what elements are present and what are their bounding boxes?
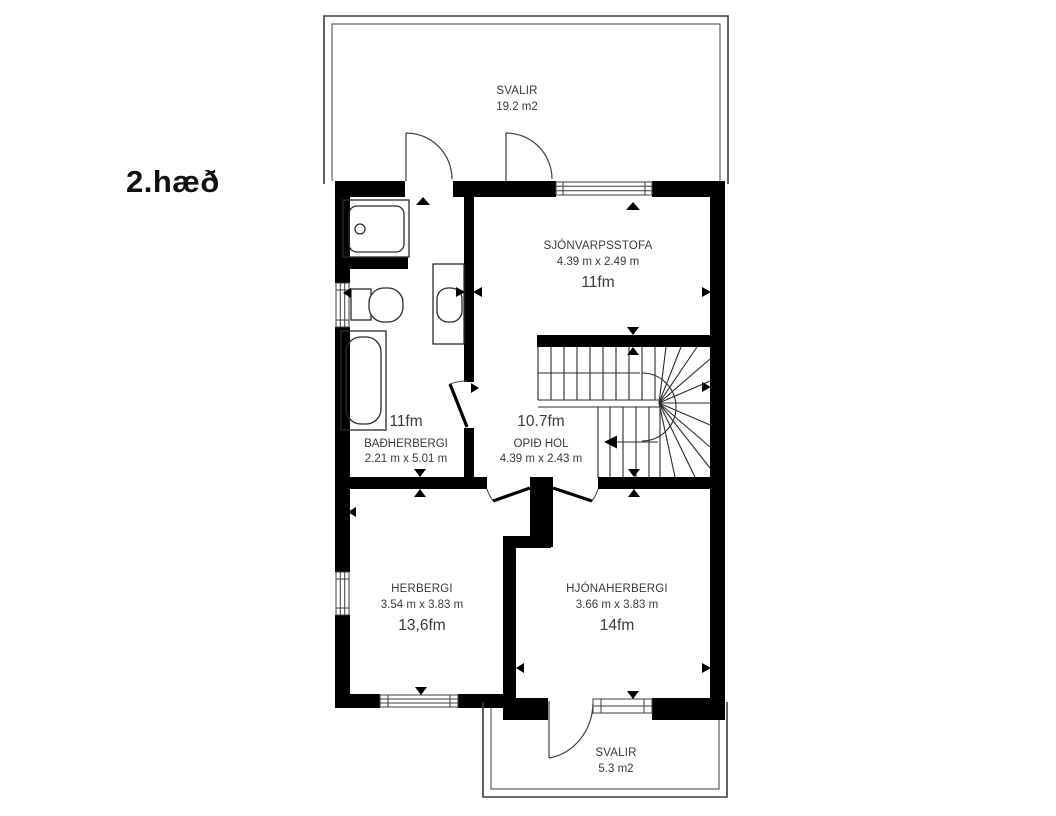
room-area: 11fm — [543, 274, 652, 293]
room-name: HJÓNAHERBERGI — [566, 583, 668, 597]
room-label-svalir-top: SVALIR 19.2 m2 — [496, 85, 538, 115]
door-swing — [553, 488, 598, 501]
room-name: SVALIR — [496, 85, 538, 99]
room-area: 11fm — [364, 413, 448, 432]
window-symbol — [336, 283, 349, 327]
shower-symbol — [343, 200, 409, 257]
room-name: HERBERGI — [381, 583, 463, 597]
room-label-hjonaherbergi: HJÓNAHERBERGI 3.66 m x 3.83 m 14fm — [566, 583, 668, 635]
room-area: 5.3 m2 — [595, 763, 636, 777]
room-label-sjonvarpsstofa: SJÓNVARPSSTOFA 4.39 m x 2.49 m 11fm — [543, 240, 652, 292]
room-label-svalir-bottom: SVALIR 5.3 m2 — [595, 747, 636, 777]
room-area: 19.2 m2 — [496, 101, 538, 115]
door-swing — [487, 488, 530, 501]
window-symbol — [556, 182, 652, 195]
room-label-herbergi: HERBERGI 3.54 m x 3.83 m 13,6fm — [381, 583, 463, 635]
window-symbol — [380, 695, 458, 707]
room-area: 14fm — [566, 617, 668, 636]
room-area: 10.7fm — [500, 413, 582, 432]
floor-plan-2nd-floor: 2.hæð — [0, 0, 1056, 816]
room-name: SJÓNVARPSSTOFA — [543, 240, 652, 254]
window-symbol — [336, 572, 349, 615]
room-dims: 3.66 m x 3.83 m — [566, 599, 668, 613]
room-label-badherbergi: 11fm BAÐHERBERGI 2.21 m x 5.01 m — [364, 413, 448, 467]
room-dims: 2.21 m x 5.01 m — [364, 453, 448, 467]
door-swing — [406, 133, 552, 181]
room-name: BAÐHERBERGI — [364, 438, 448, 452]
sink-symbol — [433, 264, 464, 344]
room-label-opid-hol: 10.7fm OPIÐ HOL 4.39 m x 2.43 m — [500, 413, 582, 467]
room-dims: 4.39 m x 2.49 m — [543, 256, 652, 270]
room-dims: 3.54 m x 3.83 m — [381, 599, 463, 613]
door-swing — [549, 701, 593, 758]
room-dims: 4.39 m x 2.43 m — [500, 453, 582, 467]
door-swing — [450, 381, 467, 427]
window-symbol — [593, 699, 652, 713]
room-name: SVALIR — [595, 747, 636, 761]
plan-linework — [0, 0, 1056, 816]
toilet-symbol — [351, 288, 403, 322]
room-name: OPIÐ HOL — [500, 438, 582, 452]
room-area: 13,6fm — [381, 617, 463, 636]
